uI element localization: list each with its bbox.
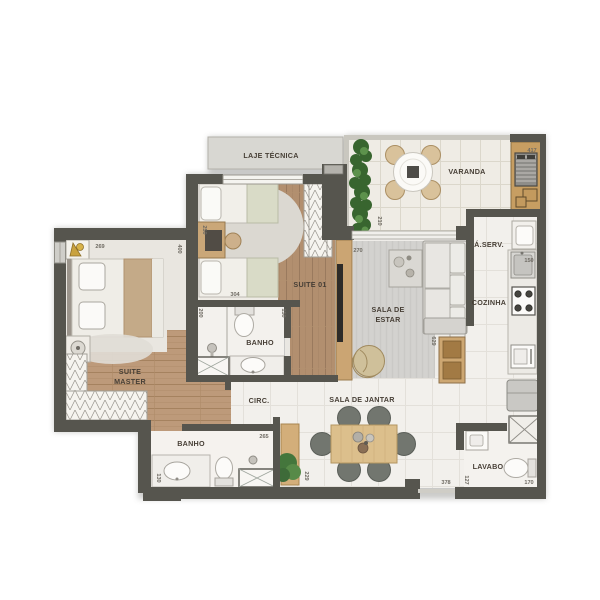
svg-text:269: 269 — [95, 244, 104, 250]
svg-text:270: 270 — [353, 248, 362, 254]
svg-text:265: 265 — [259, 434, 268, 440]
svg-text:BANHO: BANHO — [246, 338, 274, 347]
svg-text:150: 150 — [280, 308, 286, 317]
svg-text:229: 229 — [303, 471, 309, 480]
svg-text:127: 127 — [463, 475, 469, 484]
svg-text:170: 170 — [524, 480, 533, 486]
svg-text:400: 400 — [176, 244, 182, 253]
svg-text:SUITE: SUITE — [119, 367, 141, 376]
svg-text:250: 250 — [201, 225, 207, 234]
svg-text:417: 417 — [527, 148, 536, 154]
svg-text:SALA DE JANTAR: SALA DE JANTAR — [329, 395, 395, 404]
svg-text:304: 304 — [230, 292, 240, 298]
svg-text:SUITE 01: SUITE 01 — [293, 280, 326, 289]
svg-text:VARANDA: VARANDA — [448, 167, 485, 176]
svg-text:SALA DE: SALA DE — [371, 305, 404, 314]
svg-text:COZINHA: COZINHA — [472, 298, 507, 307]
svg-text:Á.SERV.: Á.SERV. — [474, 240, 504, 249]
svg-text:210: 210 — [376, 216, 382, 225]
svg-text:378: 378 — [441, 480, 450, 486]
svg-text:LAJE TÉCNICA: LAJE TÉCNICA — [243, 151, 298, 160]
svg-text:200: 200 — [197, 308, 203, 317]
svg-text:BANHO: BANHO — [177, 439, 205, 448]
svg-text:LAVABO: LAVABO — [473, 462, 504, 471]
svg-text:629: 629 — [430, 336, 436, 345]
svg-text:ESTAR: ESTAR — [375, 315, 401, 324]
svg-text:130: 130 — [155, 473, 161, 482]
svg-text:MASTER: MASTER — [114, 377, 146, 386]
svg-text:150: 150 — [524, 258, 533, 264]
svg-text:CIRC.: CIRC. — [249, 396, 270, 405]
